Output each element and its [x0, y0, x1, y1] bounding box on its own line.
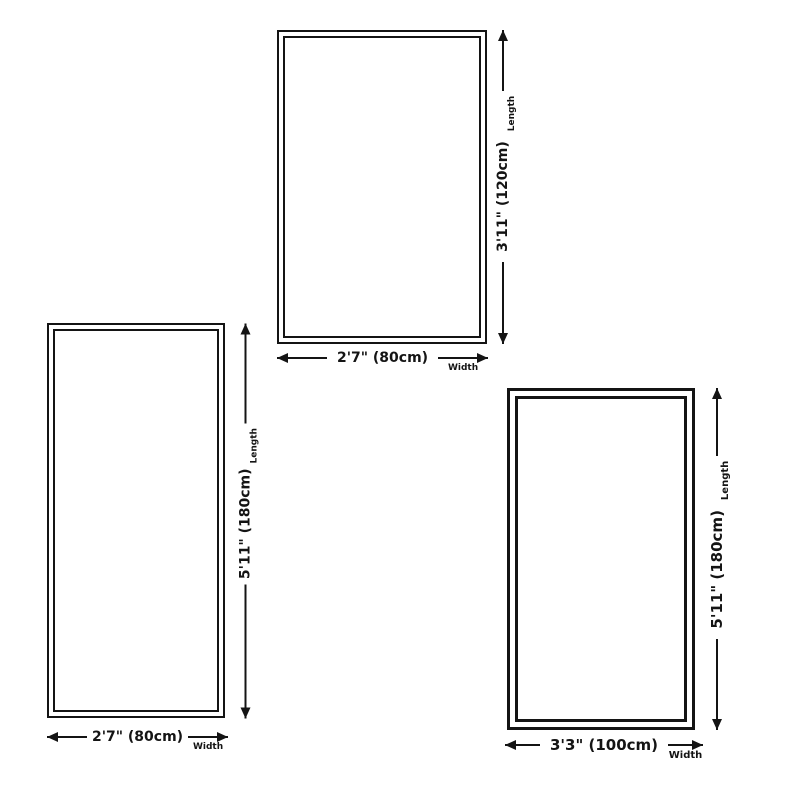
- arrowhead-left-icon: [277, 353, 288, 363]
- rug-inner-outline: [515, 396, 687, 722]
- rug-outline: [277, 30, 487, 344]
- length-caption: Length: [250, 423, 259, 463]
- width-arrow-left-segment: [47, 736, 87, 738]
- arrowhead-right-icon: [477, 353, 488, 363]
- width-value: 2'7" (80cm): [87, 730, 188, 744]
- rug-inner-outline: [53, 329, 219, 712]
- width-caption: Width: [669, 751, 703, 761]
- length-value: 5'11" (180cm): [710, 500, 725, 638]
- width-dimension-arrow: 2'7" (80cm) Width: [47, 727, 228, 747]
- length-arrow-upper-segment: [716, 388, 718, 456]
- arrowhead-left-icon: [47, 732, 58, 742]
- length-arrow-lower-segment: [245, 584, 247, 718]
- length-dimension-arrow: 5'11" (180cm) Length: [236, 324, 256, 719]
- width-value: 2'7" (80cm): [327, 351, 438, 365]
- length-caption: Length: [721, 456, 731, 500]
- length-caption: Length: [508, 91, 517, 131]
- rug-inner-outline: [283, 36, 481, 338]
- rug-outline: [507, 388, 695, 730]
- width-caption: Width: [193, 743, 223, 752]
- arrowhead-down-icon: [712, 719, 722, 730]
- rug-outline: [47, 323, 225, 718]
- width-arrow-right-segment: Width: [188, 736, 228, 738]
- width-arrow-right-segment: Width: [668, 744, 703, 746]
- arrowhead-up-icon: [712, 388, 722, 399]
- width-dimension-arrow: 3'3" (100cm) Width: [505, 735, 703, 755]
- arrowhead-right-icon: [692, 740, 703, 750]
- arrowhead-down-icon: [241, 708, 251, 719]
- length-dimension-arrow: 3'11" (120cm) Length: [493, 30, 513, 344]
- arrowhead-up-icon: [241, 324, 251, 335]
- length-arrow-lower-segment: [716, 639, 718, 730]
- rug-size-guide: 3'11" (120cm) Length 2'7" (80cm) Width: [0, 0, 800, 800]
- arrowhead-left-icon: [505, 740, 516, 750]
- length-arrow-lower-segment: [502, 262, 504, 344]
- width-dimension-arrow: 2'7" (80cm) Width: [277, 348, 488, 368]
- arrowhead-down-icon: [498, 333, 508, 344]
- width-value: 3'3" (100cm): [540, 738, 668, 753]
- width-arrow-left-segment: [505, 744, 540, 746]
- width-arrow-left-segment: [277, 357, 327, 359]
- arrowhead-right-icon: [217, 732, 228, 742]
- length-value: 5'11" (180cm): [239, 463, 253, 584]
- length-arrow-upper-segment: [502, 30, 504, 91]
- width-caption: Width: [448, 364, 478, 373]
- arrowhead-up-icon: [498, 30, 508, 41]
- length-arrow-upper-segment: [245, 324, 247, 424]
- length-value: 3'11" (120cm): [496, 131, 510, 262]
- width-arrow-right-segment: Width: [438, 357, 488, 359]
- length-dimension-arrow: 5'11" (180cm) Length: [707, 388, 727, 730]
